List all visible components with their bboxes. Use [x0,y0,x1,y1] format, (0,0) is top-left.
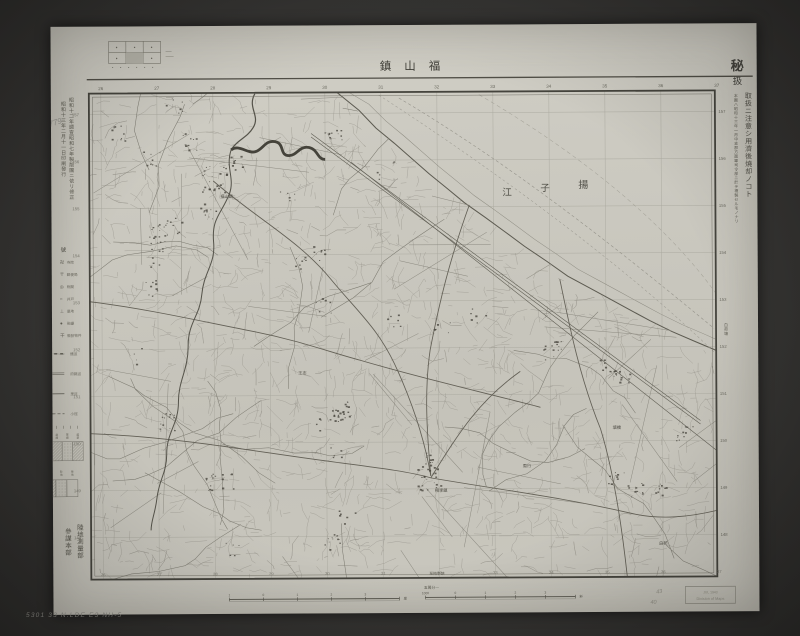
building [185,133,187,135]
building [331,313,332,314]
building [637,491,638,492]
building [152,257,154,258]
water-label-char: 揚 [578,178,588,191]
building [355,512,357,514]
legend-swatch [52,442,63,461]
building [418,486,420,488]
building [619,382,621,384]
straight-canals [93,95,743,615]
legend-label: 井戸 [67,296,75,301]
scale-number: 1 [485,591,487,595]
building [339,515,341,517]
building [677,435,679,436]
building [635,487,637,489]
building [346,517,348,519]
building [231,474,233,476]
building [204,187,206,189]
building [417,469,419,471]
building [544,349,546,351]
building [316,424,318,425]
building [692,426,693,427]
building [164,235,166,237]
building [156,288,158,290]
building [600,360,602,362]
place-label: 梅李鎮 [435,487,448,494]
legend-label: 郵便局 [67,272,78,277]
building [339,539,340,540]
building [329,542,330,543]
building [338,133,339,134]
scale-number: 1 [229,593,231,597]
grid-number-right: 154 [719,250,727,255]
building [337,539,339,541]
building [553,356,554,357]
scale-bars: 10123里10000123粁 [229,590,584,601]
scale-number: 3 [545,591,547,595]
grid-line [605,91,608,577]
grid-number-top: 35 [602,83,608,88]
building [203,212,204,213]
legend-label: 鐵道 [70,351,78,356]
building [329,549,331,551]
security-seal-top: 秘 [731,58,744,73]
building [177,233,179,234]
building [222,488,224,490]
building [173,225,174,226]
building [233,162,235,164]
building [641,483,642,484]
building [330,447,331,448]
legend: ∴神社卍寺院文學校〒郵便局×警察署◎稅關☆燈臺○井戸△渡船場⊥墓地二堤防●砲臺◇… [50,260,83,497]
building [319,430,321,432]
building [561,349,562,350]
building [165,413,167,414]
legend-swatch-label: 砂地 [60,470,63,477]
building [398,315,400,317]
building [379,179,380,180]
building [604,363,606,364]
building [141,348,143,349]
building [225,168,227,169]
building [434,467,436,469]
building [234,555,236,556]
legend-header: 記 號 [50,246,72,254]
scale-bar [229,601,399,602]
building [614,376,615,377]
building [301,261,303,262]
building [169,414,171,415]
building [211,490,213,492]
grid-number-bottom: 31 [381,571,386,576]
building [209,166,210,167]
building [162,417,163,418]
publisher-left: 參謀本部 [65,527,72,557]
grid-number-bottom: 28 [213,571,218,576]
grid-number-left: 154 [73,253,81,258]
building [152,164,153,165]
building [329,133,331,134]
building [160,242,162,243]
building [202,191,204,192]
grid-number-bottom: 34 [549,570,554,575]
building [338,421,339,422]
building [661,485,663,486]
building [111,130,113,132]
grid-number-right: 152 [720,344,728,349]
building [213,189,215,191]
building [422,485,424,486]
building [434,482,435,483]
building [157,290,158,291]
grid-number-bottom: 33 [493,570,498,575]
legend-swatch-label: 茶畑 [66,433,69,440]
legend-symbol: ◎ [60,284,64,289]
issue-note: 昭和十三年二月十一日印刷發行 [61,102,66,178]
sheet-index-diagram [109,41,174,68]
building [160,424,161,425]
legend-swatch [62,442,73,461]
building [338,416,340,418]
building [167,235,168,236]
building [437,468,439,470]
grid-number-right: 155 [719,203,727,208]
building [146,165,148,167]
building [233,545,234,546]
building [628,378,630,379]
grid-number-top: 30 [322,85,328,90]
building [349,416,351,418]
legend-label: 稅關 [67,284,75,289]
building [556,341,558,343]
building [223,167,224,168]
place-label: 周行 [523,462,531,469]
building [206,480,207,481]
pencil-scribble: 43 [656,588,664,595]
building [628,487,630,488]
building [170,222,172,223]
building [340,514,342,516]
building [173,100,174,101]
legend-symbol: 卍 [60,260,65,266]
building [151,249,153,250]
building [206,211,208,212]
building [169,428,170,429]
map-sheet-svg: 鎮山福 秘 扱 取扱ニ注意シ用濟後燒却ノコト 本圖ハ昭和十三年一月中支那方面軍司… [50,23,759,615]
grid-line [101,94,104,580]
building [206,478,208,480]
building [436,484,438,486]
field-lines [77,81,720,600]
grid-number-top: 28 [210,85,216,90]
building [210,209,211,210]
building [167,220,169,221]
building [628,382,630,383]
building [556,344,558,345]
place-label: 王市 [298,370,306,377]
scale-number: 0 [455,591,457,595]
building [185,145,187,147]
building [435,329,437,330]
building [114,128,115,129]
scale-bar [229,599,399,600]
building [432,459,434,461]
building [340,450,342,452]
grid-line [325,92,328,578]
building [165,225,166,226]
building [316,254,317,255]
building [343,413,345,415]
building [655,492,657,494]
building [173,417,174,418]
building [152,296,153,297]
legend-swatch-label: 蘆葦 [76,433,79,440]
building [397,320,399,321]
legend-swatch [50,442,51,461]
building [347,402,348,403]
building [616,375,617,376]
building [304,259,305,260]
grid-number-bottom: 29 [269,571,274,576]
building [295,266,297,268]
grid-number-bottom: 27 [157,572,162,577]
building [334,534,336,535]
building [305,260,307,261]
building [196,150,197,151]
building [205,215,206,216]
grid-number-left: 156 [72,159,80,164]
building [321,251,323,252]
legend-swatch [50,480,55,497]
building [287,193,288,194]
building [472,309,473,310]
building [289,200,290,201]
building [433,473,434,474]
building [188,145,190,146]
building [169,416,171,417]
building [120,126,121,127]
building [206,167,207,168]
building [300,268,302,269]
grid-number-left: 155 [72,206,80,211]
building [209,489,211,491]
building [330,138,331,139]
building [160,431,161,432]
building [190,138,191,139]
sheet-title: 鎮山福 [380,59,454,73]
adjoining-note-bottom: 至梅李鎮 [429,571,444,576]
building [393,163,394,164]
building [390,316,392,317]
building [242,167,243,168]
legend-symbol: 〒 [60,272,65,277]
building [425,463,426,464]
building [226,543,227,544]
building [320,302,321,303]
legend-swatch-label: 桑畑 [55,433,58,440]
building [220,184,222,186]
building [662,495,664,497]
building [683,436,684,437]
building [351,415,352,416]
grid-number-right: 153 [719,297,727,302]
water-label-char: 江 [502,187,512,198]
building [347,412,349,413]
building [609,371,611,372]
building [136,360,137,361]
building [157,242,158,243]
building [430,459,432,461]
building [332,539,333,540]
grid-number-top: 29 [266,85,272,90]
building [164,241,165,242]
place-label: 塘橋 [613,424,622,431]
building [450,322,451,323]
grid-line [549,91,552,577]
building [387,318,389,320]
grid-number-bottom: 35 [605,569,610,574]
building [339,543,341,544]
building [296,258,297,259]
building [426,453,427,454]
building [313,246,315,248]
legend-label: 墓地 [67,309,75,314]
building [642,492,643,493]
building [435,473,437,475]
building [440,485,442,487]
building [430,465,432,467]
building [341,457,343,459]
building [634,491,636,493]
building [166,105,168,107]
building [175,218,177,219]
building [124,140,126,142]
building [209,188,211,190]
building [659,488,660,489]
building [203,190,204,191]
building [222,474,224,476]
building [319,311,321,312]
building [330,302,332,303]
scale-number: 2 [331,593,333,597]
building [215,476,216,477]
building [185,144,186,145]
grid-line [91,534,717,537]
building [377,172,379,174]
building [211,475,212,476]
building [174,430,176,431]
building [280,192,281,193]
building [344,523,346,525]
building [666,487,668,489]
building [629,374,631,376]
building [134,354,135,355]
building [209,217,210,218]
building [148,294,149,295]
building [545,346,547,348]
building [335,410,337,411]
legend-label: 里道 [70,391,78,396]
building [609,476,611,477]
building [393,162,395,163]
grid-number-top: 33 [490,84,496,89]
building [155,283,157,285]
grid-number-right: 157 [718,109,726,114]
building [196,138,198,140]
building [172,98,173,99]
building [331,133,333,134]
building [155,280,157,281]
building [222,184,223,185]
building [437,324,439,326]
building [167,223,168,224]
building [150,154,151,155]
building [677,437,678,438]
building [218,188,220,190]
grid-number-top: 34 [546,84,552,89]
water-label-char: 子 [540,183,550,194]
building [182,111,183,112]
building [342,419,344,421]
map-content: 福山鎮梅李鎮王市周行塘橋白茆 江 子 揚 [50,23,759,615]
building [159,230,160,231]
building [619,371,621,373]
building [339,413,341,415]
building [219,173,221,175]
building [120,139,121,140]
legend-symbol: ⊥ [60,309,64,314]
building [143,151,145,153]
grid-number-top: 26 [98,86,104,91]
grid-number-top: 31 [378,85,384,90]
grid-number-right: 151 [720,391,728,396]
building [545,359,546,360]
building [400,326,402,327]
building [289,197,291,198]
building [114,126,116,128]
legend-symbol: ● [60,321,63,326]
building [179,232,181,233]
grid-number-right: 150 [720,438,728,443]
grid-number-bottom: 30 [325,571,330,576]
building [679,440,680,441]
building [325,300,327,302]
building [332,537,333,538]
scale-number: 2 [515,591,517,595]
building [159,250,161,251]
place-labels: 福山鎮梅李鎮王市周行塘橋白茆 [220,191,667,549]
building [324,253,326,255]
building [324,250,326,251]
building [615,472,616,473]
grid-number-bottom: 37 [717,569,722,574]
building [475,315,477,317]
building [614,370,616,372]
grid-number-top: 36 [658,83,664,88]
building [340,419,342,420]
publisher-right: 陸地測量部 [77,523,84,560]
legend-swatch [73,442,84,461]
building [430,462,432,463]
building [333,457,334,458]
building [435,477,437,478]
building [657,491,659,492]
building [558,346,559,347]
building [233,488,235,489]
building [150,164,152,165]
building [150,243,151,244]
building [432,462,433,463]
library-stamp: JUL 1943 Division of Maps [685,586,735,603]
